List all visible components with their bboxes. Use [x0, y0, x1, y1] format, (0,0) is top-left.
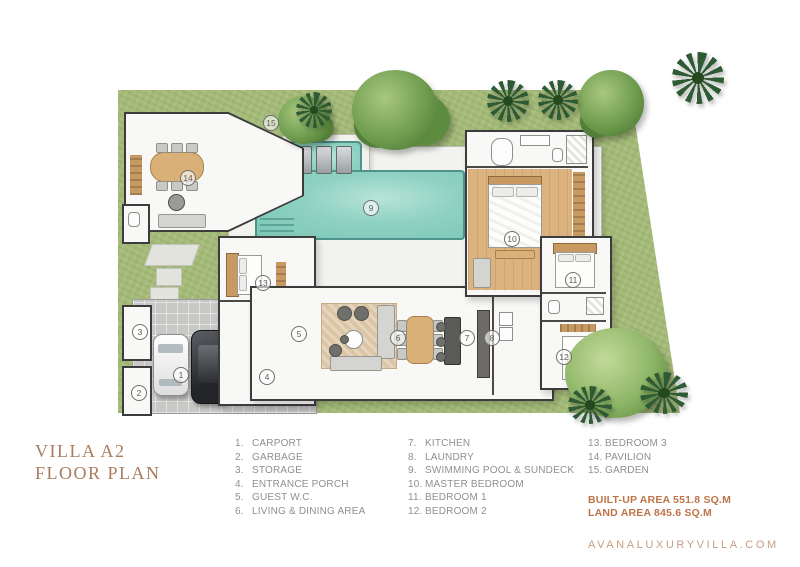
kitchen-island [444, 317, 461, 365]
legend-label: LAUNDRY [425, 451, 474, 465]
legend-label: GARDEN [605, 464, 649, 478]
pavilion-wc-toilet [128, 212, 140, 227]
legend-number: 14. [588, 451, 605, 465]
plan-label-entrance-porch: 4 [259, 369, 275, 385]
plan-label-laundry: 8 [484, 330, 500, 346]
legend-item: 14.PAVILION [588, 451, 667, 465]
legend-label: BEDROOM 1 [425, 491, 487, 505]
legend-item: 2.GARBAGE [235, 451, 365, 465]
pavilion-chair [171, 143, 183, 153]
shower [566, 135, 587, 164]
built-up-area: BUILT-UP AREA 551.8 SQ.M [588, 494, 731, 507]
plan-label-garden: 15 [263, 115, 279, 131]
legend-number: 3. [235, 464, 252, 478]
dryer [499, 327, 513, 341]
plan-label-bedroom3: 13 [255, 275, 271, 291]
legend-item: 9.SWIMMING POOL & SUNDECK [408, 464, 574, 478]
living-armchair [337, 306, 352, 321]
plan-label-master-bedroom: 10 [504, 231, 520, 247]
bathtub [491, 138, 513, 166]
legend-item: 8.LAUNDRY [408, 451, 574, 465]
legend-number: 6. [235, 505, 252, 519]
master-bed-bench [495, 250, 535, 259]
page-title: VILLA A2 FLOOR PLAN [35, 440, 161, 484]
pavilion-chair [186, 143, 198, 153]
car-windshield [158, 344, 183, 353]
dining-chair [397, 348, 407, 360]
tree [352, 70, 438, 150]
plan-label-garbage: 2 [131, 385, 147, 401]
living-armchair [329, 344, 342, 357]
legend-item: 15.GARDEN [588, 464, 667, 478]
legend-number: 13. [588, 437, 605, 451]
pool-lounger [336, 146, 352, 174]
legend-number: 8. [408, 451, 425, 465]
legend-label: BEDROOM 3 [605, 437, 667, 451]
legend-item: 10.MASTER BEDROOM [408, 478, 574, 492]
palm-tree [296, 92, 332, 128]
legend-label: GARBAGE [252, 451, 303, 465]
plan-label-carport: 1 [173, 367, 189, 383]
legend-item: 1.CARPORT [235, 437, 365, 451]
legend-number: 15. [588, 464, 605, 478]
legend-item: 7.KITCHEN [408, 437, 574, 451]
wall [467, 166, 588, 168]
legend-column-3: 13.BEDROOM 3 14.PAVILION 15.GARDEN [588, 437, 667, 478]
plan-label-bedroom1: 11 [565, 272, 581, 288]
legend-number: 9. [408, 464, 425, 478]
plan-label-bedroom2: 12 [556, 349, 572, 365]
palm-tree [538, 80, 578, 120]
pavilion-chair [156, 143, 168, 153]
legend-column-1: 1.CARPORT 2.GARBAGE 3.STORAGE 4.ENTRANCE… [235, 437, 365, 519]
palm-tree [568, 386, 612, 424]
palm-tree [672, 52, 724, 104]
plan-label-pool: 9 [363, 200, 379, 216]
wall [542, 320, 606, 322]
legend-number: 10. [408, 478, 425, 492]
toilet [552, 148, 563, 162]
legend-column-2: 7.KITCHEN 8.LAUNDRY 9.SWIMMING POOL & SU… [408, 437, 574, 519]
master-bed-pillow [516, 187, 538, 197]
legend-item: 4.ENTRANCE PORCH [235, 478, 365, 492]
tree [578, 70, 644, 136]
plan-label-guest-wc: 5 [291, 326, 307, 342]
wall [542, 292, 606, 294]
stepping-stone [156, 268, 182, 286]
legend-label: MASTER BEDROOM [425, 478, 524, 492]
pavilion-chair [156, 181, 168, 191]
legend-number: 12. [408, 505, 425, 519]
car-white [153, 334, 189, 396]
website-url: AVANALUXURYVILLA.COM [588, 539, 779, 551]
stepping-stone [144, 244, 200, 266]
pool-steps [260, 214, 294, 232]
plan-label-pavilion: 14 [180, 170, 196, 186]
palm-tree [487, 80, 529, 122]
kitchen-stool [436, 322, 446, 332]
pavilion-sofa [158, 214, 206, 228]
palm-tree [640, 372, 688, 414]
legend-item: 12.BEDROOM 2 [408, 505, 574, 519]
legend-item: 6.LIVING & DINING AREA [235, 505, 365, 519]
legend-label: ENTRANCE PORCH [252, 478, 349, 492]
legend-item: 3.STORAGE [235, 464, 365, 478]
legend-number: 7. [408, 437, 425, 451]
legend-number: 1. [235, 437, 252, 451]
area-summary: BUILT-UP AREA 551.8 SQ.M LAND AREA 845.6… [588, 494, 731, 520]
bed3-pillow [239, 258, 247, 274]
legend-item: 11.BEDROOM 1 [408, 491, 574, 505]
pavilion-cabinet [130, 155, 142, 195]
legend-label: PAVILION [605, 451, 651, 465]
land-area: LAND AREA 845.6 SQ.M [588, 507, 731, 520]
page-title-line1: VILLA A2 [35, 440, 161, 462]
legend-label: SWIMMING POOL & SUNDECK [425, 464, 574, 478]
side-table [340, 335, 349, 344]
bath2-shower [586, 297, 604, 315]
floor-plan-page: 1 2 3 4 5 6 7 8 9 10 11 12 13 14 15 VILL… [0, 0, 800, 567]
legend-number: 2. [235, 451, 252, 465]
plan-label-living-dining: 6 [390, 330, 406, 346]
bed1-pillow [558, 254, 574, 262]
plan-label-kitchen: 7 [459, 330, 475, 346]
washer [499, 312, 513, 326]
vanity [520, 135, 550, 146]
living-sofa-horizontal [330, 356, 382, 371]
bed3-pillow [239, 275, 247, 291]
bed2-wardrobe [560, 324, 596, 332]
kitchen-stool [436, 352, 446, 362]
kitchen-stool [436, 337, 446, 347]
pavilion-ottoman [168, 194, 185, 211]
legend-label: GUEST W.C. [252, 491, 313, 505]
legend-label: KITCHEN [425, 437, 470, 451]
master-daybed [473, 258, 491, 288]
legend-item: 5.GUEST W.C. [235, 491, 365, 505]
living-armchair [354, 306, 369, 321]
dining-table [406, 316, 434, 364]
master-bed-pillow [492, 187, 514, 197]
site-plan: 1 2 3 4 5 6 7 8 9 10 11 12 13 14 15 [0, 0, 800, 430]
legend-item: 13.BEDROOM 3 [588, 437, 667, 451]
bed1-pillow [575, 254, 591, 262]
page-title-line2: FLOOR PLAN [35, 462, 161, 484]
legend-label: LIVING & DINING AREA [252, 505, 365, 519]
legend-label: BEDROOM 2 [425, 505, 487, 519]
plan-label-storage: 3 [132, 324, 148, 340]
bath2-toilet [548, 300, 560, 314]
legend-label: STORAGE [252, 464, 302, 478]
legend-number: 5. [235, 491, 252, 505]
pool-lounger [316, 146, 332, 174]
legend-number: 4. [235, 478, 252, 492]
legend-label: CARPORT [252, 437, 302, 451]
legend-number: 11. [408, 491, 425, 505]
